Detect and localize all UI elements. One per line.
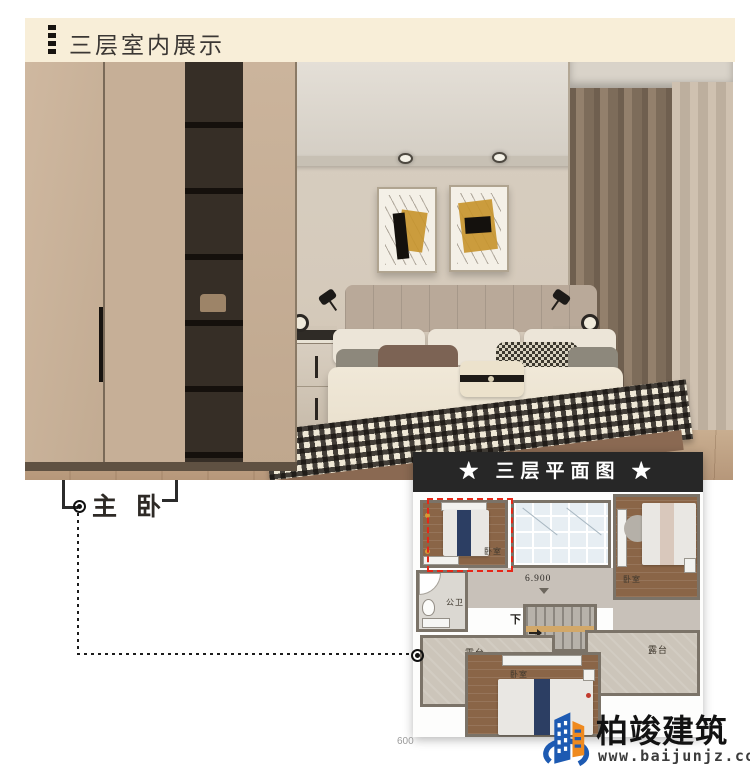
plan-stairs-down-label: 下 xyxy=(510,611,521,627)
plan-hallway xyxy=(613,600,700,632)
plan-partial-dimension: 600 xyxy=(397,736,414,747)
plan-pillow-dot xyxy=(586,693,591,698)
plan-label-bedroom: 卧室 xyxy=(623,574,641,585)
plan-wardrobe xyxy=(617,509,627,567)
plan-sink xyxy=(422,618,450,628)
lumbar-emblem xyxy=(488,376,494,382)
company-name: 柏竣建筑 xyxy=(596,706,728,752)
pillow-lumbar xyxy=(460,361,524,397)
wall-art-left xyxy=(377,187,437,273)
plan-shower xyxy=(419,573,441,595)
plan-wardrobe xyxy=(502,655,582,666)
plan-label-bathroom: 公卫 xyxy=(446,597,464,608)
floor-plan-title: ★ 三层平面图 ★ xyxy=(413,452,703,492)
section-header: 三层室内展示 xyxy=(25,18,735,62)
wardrobe-door xyxy=(25,62,103,462)
wall-art-right xyxy=(449,185,509,272)
drawer-handle xyxy=(315,398,318,420)
wardrobe-base xyxy=(25,462,297,471)
bedroom-photo xyxy=(25,62,733,480)
floor-plan-drawing: 卧室 卧室 公卫 xyxy=(413,492,703,737)
plan-room-bedroom-right: 卧室 xyxy=(613,494,700,600)
logo-building-icon xyxy=(538,706,592,768)
plan-elevation-marker xyxy=(539,588,549,594)
page: 三层室内展示 xyxy=(0,0,750,783)
wardrobe-door xyxy=(103,62,187,464)
plan-skylight-diagonal xyxy=(566,508,601,536)
drawer-handle xyxy=(315,356,318,378)
plan-skylight-diagonal xyxy=(522,508,557,536)
plan-room-bathroom: 公卫 xyxy=(416,570,468,632)
company-website: www.baijunjz.com xyxy=(598,747,750,765)
plan-room-terrace-right: 露台 xyxy=(585,630,700,696)
wardrobe-open-shelves xyxy=(185,62,243,467)
plan-label-terrace: 露台 xyxy=(648,643,668,656)
section-title: 三层室内展示 xyxy=(69,26,225,60)
master-bedroom-label: 主 卧 xyxy=(92,487,167,523)
highlight-box-master-bedroom xyxy=(427,498,513,572)
plan-nightstand xyxy=(684,558,696,573)
art-black-shape xyxy=(464,216,491,234)
ceiling-spotlight xyxy=(492,152,507,163)
callout-end-dot xyxy=(411,649,424,662)
wardrobe-handle xyxy=(99,307,103,382)
company-logo: 柏竣建筑 www.baijunjz.com xyxy=(538,706,743,776)
ceiling-spotlight xyxy=(398,153,413,164)
connector-line-vertical xyxy=(77,513,79,653)
floor-plan-card: ★ 三层平面图 ★ 卧室 xyxy=(413,452,703,737)
connector-line-horizontal xyxy=(77,653,411,655)
plan-nightstand xyxy=(583,669,595,681)
shelf-handbag xyxy=(200,294,226,312)
plan-elevation-label: 6.900 xyxy=(525,574,551,584)
plan-stairs-arrow xyxy=(529,632,541,634)
plan-blanket xyxy=(660,503,674,565)
plan-toilet xyxy=(422,599,435,616)
plan-skylight xyxy=(511,500,611,568)
dashed-bar-icon xyxy=(48,25,56,56)
wardrobe-door xyxy=(243,62,297,470)
callout-start-dot xyxy=(73,500,86,513)
plan-label-bedroom: 卧室 xyxy=(510,669,528,680)
wall-sconce-left xyxy=(318,288,338,306)
